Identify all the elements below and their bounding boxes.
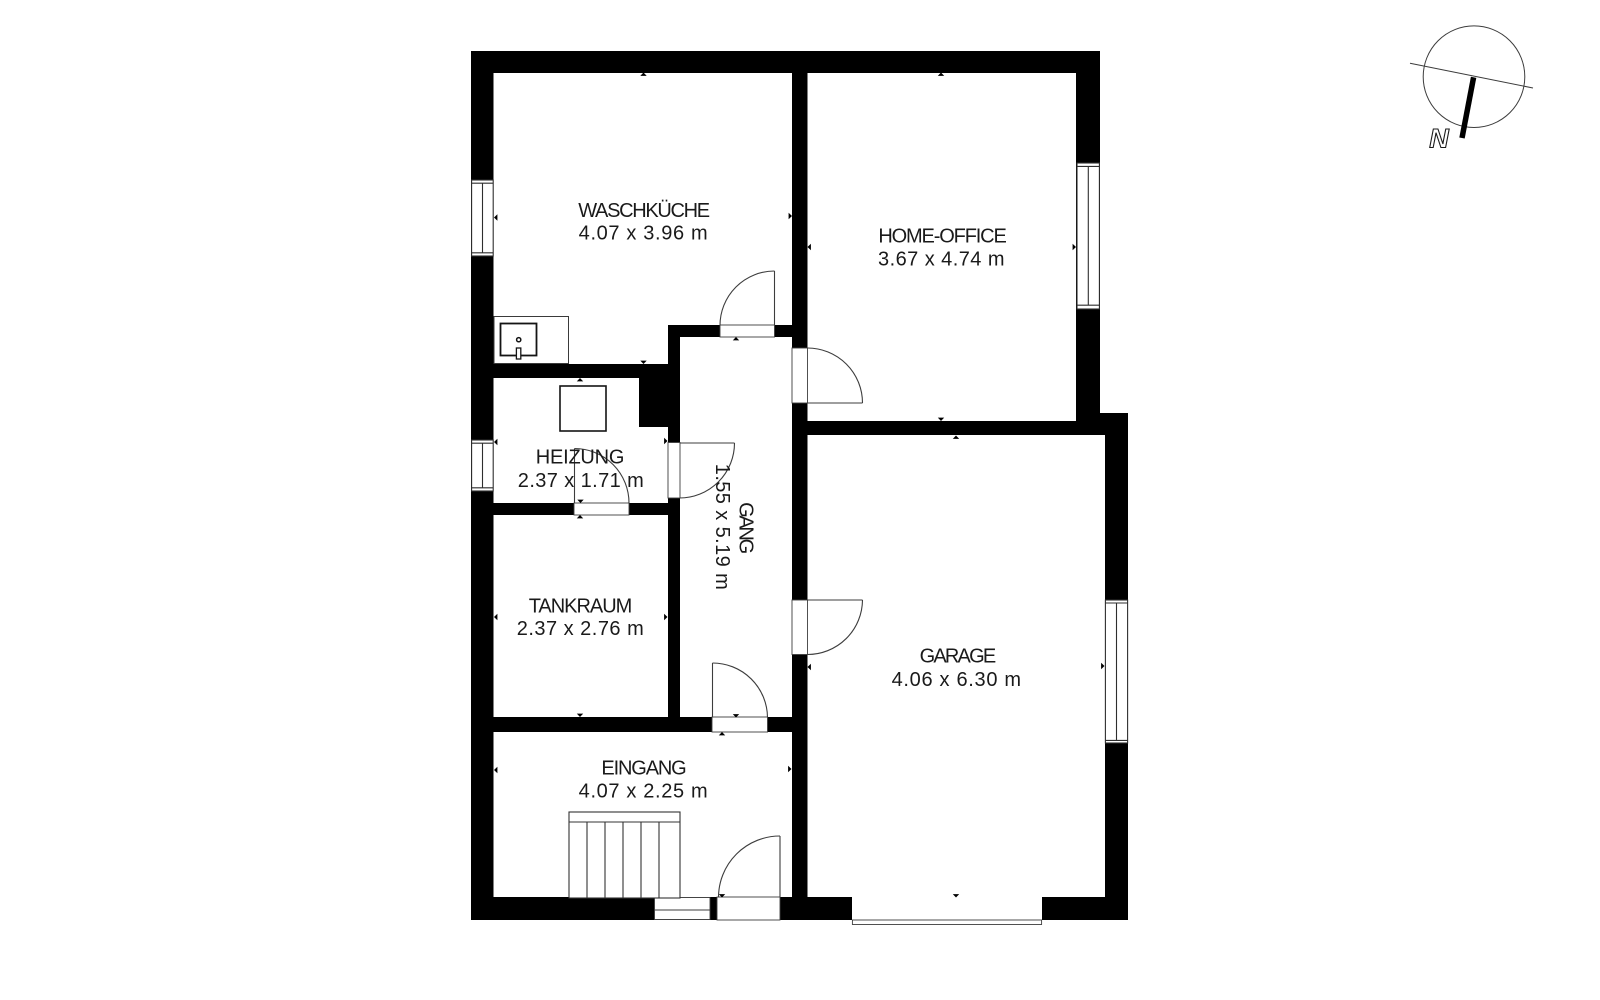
svg-text:EINGANG: EINGANG [601,758,686,780]
svg-text:4.06 x 6.30 m: 4.06 x 6.30 m [892,669,1022,691]
svg-text:GANG: GANG [735,502,757,553]
svg-text:WASCHKÜCHE: WASCHKÜCHE [578,200,709,222]
svg-text:4.07 x 3.96 m: 4.07 x 3.96 m [579,223,709,245]
svg-text:HOME-OFFICE: HOME-OFFICE [878,226,1006,248]
svg-text:2.37 x 1.71 m: 2.37 x 1.71 m [518,470,644,492]
svg-text:HEIZUNG: HEIZUNG [536,447,624,469]
svg-text:TANKRAUM: TANKRAUM [529,596,632,618]
svg-text:3.67 x 4.74 m: 3.67 x 4.74 m [878,249,1005,271]
svg-text:2.37 x 2.76 m: 2.37 x 2.76 m [517,618,644,640]
svg-text:1.55 x 5.19 m: 1.55 x 5.19 m [711,464,733,590]
svg-text:N: N [1429,124,1449,154]
svg-text:4.07 x 2.25 m: 4.07 x 2.25 m [579,781,709,803]
svg-text:GARAGE: GARAGE [920,646,996,668]
